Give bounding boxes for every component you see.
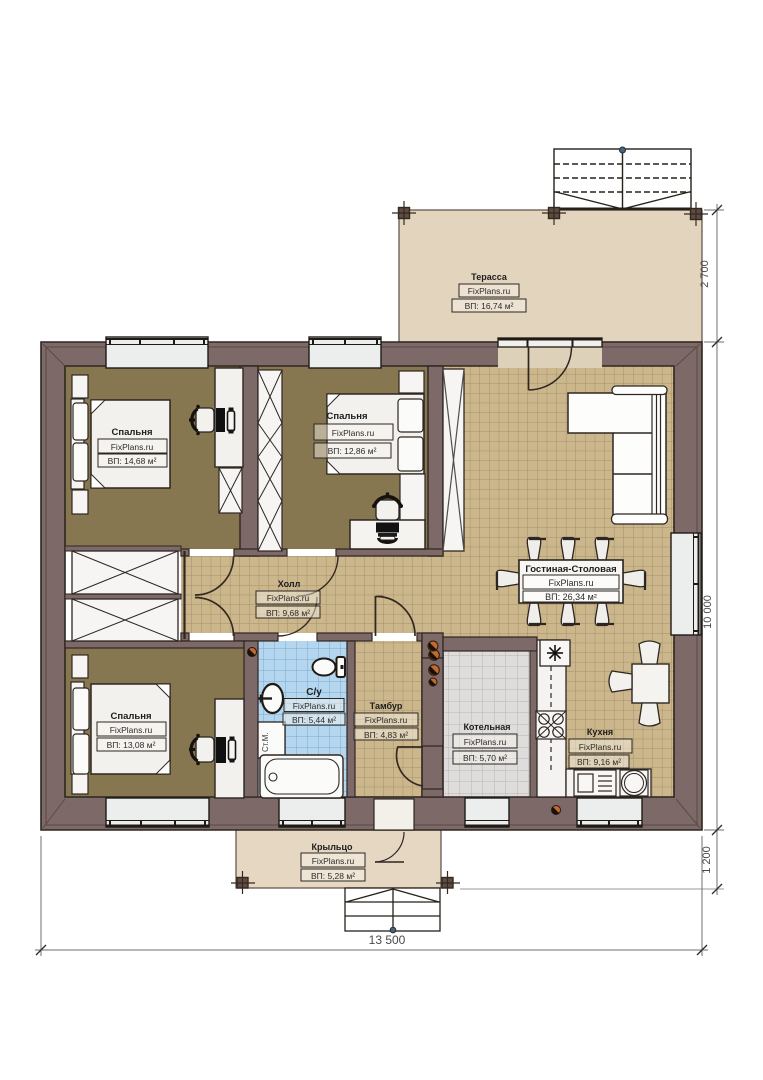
svg-text:Гостиная-Столовая: Гостиная-Столовая bbox=[525, 564, 616, 575]
svg-text:ВП: 4,83 м²: ВП: 4,83 м² bbox=[364, 730, 408, 740]
svg-text:ВП: 14,68 м²: ВП: 14,68 м² bbox=[108, 456, 157, 466]
svg-text:FixPlans.ru: FixPlans.ru bbox=[365, 715, 408, 725]
svg-text:Крыльцо: Крыльцо bbox=[312, 842, 353, 852]
svg-text:Кухня: Кухня bbox=[587, 727, 613, 737]
svg-text:ВП: 13,08 м²: ВП: 13,08 м² bbox=[107, 740, 156, 750]
svg-text:ВП: 12,86 м²: ВП: 12,86 м² bbox=[328, 446, 377, 456]
svg-text:С/у: С/у bbox=[306, 687, 322, 698]
svg-text:ВП: 5,44 м²: ВП: 5,44 м² bbox=[292, 715, 336, 725]
svg-text:FixPlans.ru: FixPlans.ru bbox=[110, 725, 153, 735]
svg-text:ВП: 26,34 м²: ВП: 26,34 м² bbox=[545, 592, 597, 602]
svg-text:ВП: 16,74 м²: ВП: 16,74 м² bbox=[465, 301, 514, 311]
svg-text:ВП: 9,68 м²: ВП: 9,68 м² bbox=[266, 608, 310, 618]
svg-text:13 500: 13 500 bbox=[369, 933, 406, 947]
svg-text:FixPlans.ru: FixPlans.ru bbox=[548, 578, 593, 588]
svg-text:Ст.М.: Ст.М. bbox=[261, 732, 270, 752]
svg-text:Спальня: Спальня bbox=[110, 711, 151, 722]
svg-text:FixPlans.ru: FixPlans.ru bbox=[579, 742, 622, 752]
svg-text:FixPlans.ru: FixPlans.ru bbox=[312, 856, 355, 866]
svg-text:1 200: 1 200 bbox=[701, 846, 713, 874]
svg-text:Холл: Холл bbox=[278, 579, 301, 589]
svg-text:FixPlans.ru: FixPlans.ru bbox=[468, 286, 511, 296]
svg-text:10 000: 10 000 bbox=[702, 595, 714, 629]
svg-text:Спальня: Спальня bbox=[111, 427, 152, 438]
svg-text:Котельная: Котельная bbox=[463, 722, 510, 732]
svg-text:ВП: 5,70 м²: ВП: 5,70 м² bbox=[463, 753, 507, 763]
svg-text:FixPlans.ru: FixPlans.ru bbox=[332, 428, 375, 438]
svg-text:FixPlans.ru: FixPlans.ru bbox=[464, 737, 507, 747]
svg-text:Тамбур: Тамбур bbox=[370, 701, 403, 711]
svg-text:Спальня: Спальня bbox=[326, 411, 367, 422]
svg-text:ВП: 5,28 м²: ВП: 5,28 м² bbox=[311, 871, 355, 881]
svg-text:ВП: 9,16 м²: ВП: 9,16 м² bbox=[577, 757, 621, 767]
svg-text:FixPlans.ru: FixPlans.ru bbox=[293, 701, 336, 711]
svg-text:FixPlans.ru: FixPlans.ru bbox=[111, 442, 154, 452]
svg-text:FixPlans.ru: FixPlans.ru bbox=[267, 593, 310, 603]
svg-text:2 700: 2 700 bbox=[699, 260, 711, 288]
svg-text:Терасса: Терасса bbox=[471, 272, 508, 282]
